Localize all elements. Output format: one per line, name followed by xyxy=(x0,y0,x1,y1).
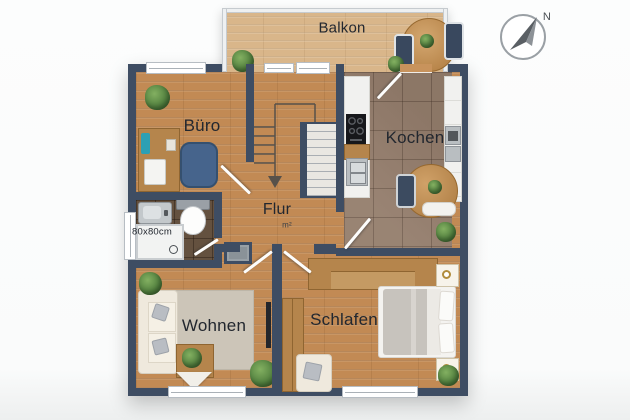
compass-rose-icon xyxy=(496,8,566,66)
wall-wohnen-schlafen-divider xyxy=(272,244,282,396)
coffee-table-plant xyxy=(182,348,202,368)
buero-desk xyxy=(138,128,180,192)
kitchen-sink-basin xyxy=(350,162,366,173)
apartment: 80x80cm xyxy=(128,64,468,396)
wohnen-sofa xyxy=(138,290,178,374)
desk-item xyxy=(166,139,176,151)
balcony-railing-top xyxy=(222,8,448,13)
sink-basin xyxy=(143,206,161,219)
kitchen-chair xyxy=(396,174,416,208)
sink-faucet xyxy=(164,210,168,216)
kitchen-table-plant xyxy=(428,180,442,194)
bed-pillow-bottom xyxy=(438,323,455,354)
oven-window xyxy=(448,131,458,141)
balcony-table-plant xyxy=(420,34,434,48)
compass-north-label: N xyxy=(543,11,551,23)
shower-size-label: 80x80cm xyxy=(132,227,172,238)
wall-kitchen-bottom xyxy=(336,248,460,256)
wall-bathroom-right xyxy=(214,192,222,238)
compass: N xyxy=(496,8,566,66)
cooktop-burners-icon xyxy=(346,114,366,144)
window-schlafen xyxy=(342,386,418,398)
room-label-flur-area: m² xyxy=(282,221,292,230)
window-landing-2 xyxy=(296,62,330,74)
armchair-pillow xyxy=(302,361,322,381)
kitchen-sink-unit xyxy=(346,158,368,186)
nightstand-lamp-icon xyxy=(442,270,451,279)
schlafen-armchair xyxy=(296,354,332,392)
balcony xyxy=(222,8,448,72)
bathroom-sink xyxy=(138,202,172,224)
kitchen-floor-plant xyxy=(436,222,456,242)
wohnen-plant-topleft xyxy=(139,272,162,295)
buero-chair xyxy=(180,142,218,188)
desk-laptop xyxy=(144,159,166,185)
wall-buero-right-upper xyxy=(246,64,254,162)
bed-blanket xyxy=(383,289,427,355)
room-label-kochen: Kochen xyxy=(386,128,445,148)
room-label-balkon: Balkon xyxy=(318,20,365,37)
bed-pillow-top xyxy=(438,291,455,322)
wall-doorway-left xyxy=(214,244,240,252)
room-label-schlafen: Schlafen xyxy=(310,310,378,330)
balcony-chair-right xyxy=(444,22,464,60)
room-label-flur: Flur xyxy=(263,201,291,219)
schlafen-bed xyxy=(378,286,456,358)
shower-drain-icon xyxy=(169,245,178,254)
wall-doorway-right xyxy=(314,244,336,254)
window-landing xyxy=(264,63,294,73)
room-label-wohnen: Wohnen xyxy=(182,316,246,336)
kitchen-microwave xyxy=(445,146,461,162)
balcony-railing-left xyxy=(222,8,227,72)
kitchen-oven xyxy=(445,126,461,145)
buero-plant xyxy=(145,85,170,110)
kitchen-sink-basin2 xyxy=(350,173,366,184)
floorplan-canvas: Balkon N xyxy=(0,0,630,420)
window-wohnen xyxy=(168,386,246,398)
schlafen-nightstand-top xyxy=(436,264,459,287)
wall-kitchen-left xyxy=(336,64,344,212)
kitchen-bench xyxy=(422,202,456,216)
balcony-door-opening xyxy=(400,64,432,73)
kitchen-cooktop xyxy=(346,114,366,144)
wall-bathroom-top xyxy=(128,192,222,200)
wohnen-tv xyxy=(266,302,271,348)
wall-bathroom-bottom xyxy=(128,260,222,268)
staircase xyxy=(300,122,336,198)
schlafen-corner-plant xyxy=(438,365,459,386)
window-buero xyxy=(146,62,206,74)
desk-monitor xyxy=(141,133,150,154)
room-label-buero: Büro xyxy=(184,116,221,136)
